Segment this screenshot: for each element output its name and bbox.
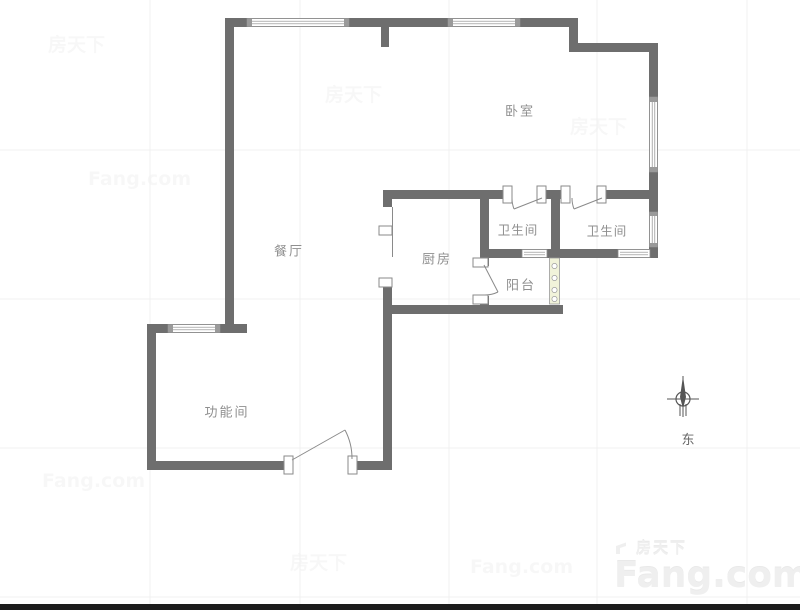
wall-kitchen-left-upper <box>383 190 392 207</box>
room-label-bathroom-left: 卫生间 <box>498 220 539 239</box>
door-balcony <box>484 265 498 295</box>
compass-icon <box>667 376 699 417</box>
wall-balcony-bottom <box>383 305 563 314</box>
room-label-kitchen: 厨房 <box>422 249 452 268</box>
window-bedroom-right <box>650 97 658 172</box>
wall-function-left <box>147 324 156 470</box>
window-bathroom-right-wall <box>650 212 658 247</box>
wall-mid-1 <box>383 190 512 199</box>
wall-mid-3 <box>598 190 658 199</box>
wall-dining-left <box>225 18 234 333</box>
room-label-dining: 餐厅 <box>274 241 304 260</box>
room-label-bathroom-right: 卫生间 <box>587 221 628 240</box>
window-top-left <box>247 19 349 27</box>
wall-function-bottom-left <box>147 461 288 470</box>
room-label-bedroom: 卧室 <box>505 101 535 120</box>
balcony-folding-door <box>550 258 560 304</box>
floor-plan-drawing <box>0 0 800 610</box>
window-function-room <box>168 325 220 333</box>
window-top-right <box>448 19 520 27</box>
room-label-balcony: 阳台 <box>506 275 536 294</box>
door-function-room <box>292 430 352 460</box>
footer-bar <box>0 604 800 610</box>
window-bathroom-left-vent <box>522 250 547 258</box>
wall-upper-right <box>569 43 658 52</box>
window-bathroom-right-bottom <box>618 250 650 258</box>
room-label-function-room: 功能间 <box>204 402 249 421</box>
windows <box>168 19 658 333</box>
wall-bathroom-divider <box>551 190 560 258</box>
wall-top-stub <box>381 27 389 47</box>
compass-east-label: 东 <box>681 429 694 448</box>
floorplan-page: 房天下 Fang.com 房天下 房天下 Fang.com 房天下 Fang.c… <box>0 0 800 610</box>
